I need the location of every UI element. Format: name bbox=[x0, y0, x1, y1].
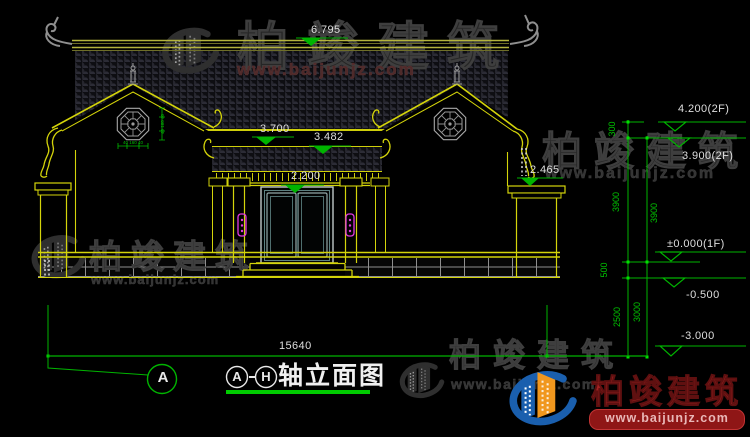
level-2f-roof-label: 4.200(2F) bbox=[678, 103, 729, 116]
chain-dim-500: 500 bbox=[598, 252, 610, 288]
level-2f-label: 3.900(2F) bbox=[682, 150, 733, 163]
end-pier-left bbox=[35, 183, 71, 277]
entrance-steps bbox=[236, 264, 359, 277]
lamp-right bbox=[346, 214, 354, 236]
overall-width-label: 15640 bbox=[279, 340, 312, 353]
main-eave-level-label: 3.700 bbox=[260, 123, 290, 136]
chain-ticks bbox=[47, 121, 649, 359]
chain-dim-3000: 3000 bbox=[631, 294, 643, 330]
brand-logo-icon bbox=[488, 362, 592, 437]
door-level-label: 2.200 bbox=[291, 170, 321, 183]
right-gable bbox=[373, 63, 535, 178]
ridge-finial-right bbox=[510, 15, 538, 46]
ornament-height-dim: 40 160 40 bbox=[160, 106, 166, 142]
title-axis-end: H bbox=[256, 370, 276, 384]
ridge-level-label: 6.795 bbox=[311, 24, 341, 37]
chain-dim-300: 300 bbox=[606, 111, 618, 147]
chain-dim-3900-inner: 3900 bbox=[648, 195, 660, 231]
brand-logo-url: www.baijunjz.com bbox=[589, 409, 745, 430]
ridge-finial-left bbox=[46, 17, 72, 46]
left-gable bbox=[41, 63, 222, 177]
level-minus3-label: -3.000 bbox=[681, 330, 715, 343]
chain-dim-2500: 2500 bbox=[611, 299, 623, 335]
axis-bubble-label: A bbox=[153, 371, 173, 385]
cad-elevation-drawing: 柏竣建筑 www.baijunjz.com 柏竣建筑 www.baijunjz.… bbox=[0, 0, 750, 437]
entrance-door bbox=[256, 187, 338, 263]
gable-eave-level-label: 2.465 bbox=[530, 164, 560, 177]
main-ridge bbox=[72, 41, 509, 51]
chain-dim-3900: 3900 bbox=[610, 184, 622, 220]
porch-eave-level-label: 3.482 bbox=[314, 131, 344, 144]
end-pier-right bbox=[508, 186, 565, 277]
level-1f-label: ±0.000(1F) bbox=[667, 238, 725, 251]
title-axis-start: A bbox=[227, 370, 247, 384]
brand-logo-name: 柏竣建筑 bbox=[591, 375, 743, 408]
ornament-width-dim: 40 160 40 bbox=[114, 140, 152, 146]
level-minus05-label: -0.500 bbox=[686, 289, 720, 302]
drawing-title: 轴立面图 bbox=[278, 363, 386, 390]
